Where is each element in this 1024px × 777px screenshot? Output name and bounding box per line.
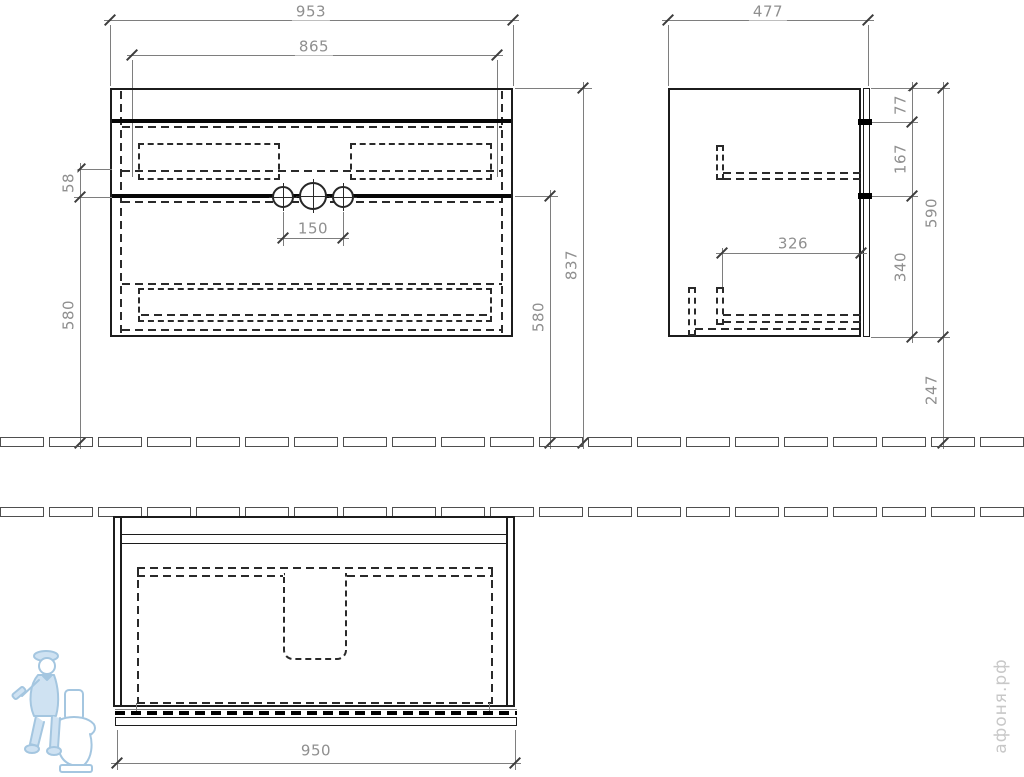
dim-front-tap-spacing: 150: [294, 221, 332, 238]
basin-hidden-outline: [347, 575, 493, 577]
hidden-line: [122, 170, 502, 172]
dim-line: [943, 82, 944, 449]
dim-side-upper-drawer-height: 167: [893, 140, 910, 178]
basin-edge-line: [112, 119, 511, 123]
plumber-watermark-icon: [8, 646, 112, 774]
hidden-line: [723, 172, 861, 174]
dim-line: [80, 163, 81, 449]
front-edge-line: [115, 709, 517, 710]
dim-line: [111, 763, 521, 764]
center-mark: [329, 197, 357, 198]
cabinet-side-outline: [668, 88, 861, 337]
dim-side-floor-clearance: 247: [924, 371, 941, 409]
technical-drawing-vanity-cabinet: 953 865: [0, 0, 1024, 777]
hidden-line: [723, 314, 861, 316]
drawer-outline: [138, 143, 280, 180]
drawer-joint-mark: [858, 193, 872, 199]
dim-front-total-height: 837: [564, 246, 581, 284]
plan-side-wall: [506, 518, 508, 705]
center-mark: [269, 197, 297, 198]
drawer-outline: [138, 288, 492, 322]
basin-hidden-outline: [137, 567, 493, 569]
basin-hidden-outline: [137, 567, 139, 704]
hidden-line: [695, 328, 861, 330]
dim-line: [550, 190, 551, 449]
plan-back-line: [122, 534, 506, 535]
drawer-profile: [716, 287, 724, 325]
basin-hidden-outline: [137, 575, 283, 577]
front-panel-outline: [863, 88, 870, 337]
dim-front-left-underside-height: 580: [61, 296, 78, 334]
dim-line: [277, 238, 349, 239]
hidden-line: [723, 178, 861, 180]
plan-side-wall: [120, 518, 122, 705]
drawer-profile: [716, 145, 724, 180]
hidden-line: [122, 283, 502, 285]
dim-front-apron-height: 58: [61, 169, 78, 197]
dim-side-top-thickness: 77: [893, 91, 910, 119]
dim-front-overall-width: 953: [292, 4, 330, 21]
dim-plan-width: 950: [297, 743, 335, 760]
drawer-outline: [350, 143, 492, 180]
dim-front-inner-width: 865: [295, 39, 333, 56]
plan-back-line: [122, 543, 506, 544]
dim-side-depth: 477: [749, 4, 787, 21]
basin-hidden-outline: [137, 702, 493, 704]
hidden-line: [122, 329, 502, 331]
hidden-line: [122, 126, 502, 128]
extension-line: [668, 25, 669, 86]
dim-line: [583, 82, 584, 449]
dim-front-right-underside-height: 580: [531, 298, 548, 336]
dim-side-drawer-depth: 326: [774, 236, 812, 253]
hidden-line: [723, 321, 861, 323]
extension-line: [110, 25, 111, 86]
watermark-site-text: афоня.рф: [991, 658, 1011, 753]
dim-side-cabinet-height: 590: [924, 194, 941, 232]
extension-line: [343, 212, 344, 246]
extension-line: [515, 196, 558, 197]
front-seal-hidden-strip: [115, 711, 517, 715]
drawer-joint-mark: [858, 119, 872, 125]
plan-front-panel: [115, 717, 517, 726]
wall-hatch-band-upper: [0, 437, 1024, 447]
dim-line: [716, 253, 867, 254]
extension-line: [868, 25, 869, 86]
dim-side-lower-drawer-height: 340: [893, 248, 910, 286]
basin-hidden-outline: [491, 567, 493, 704]
drain-recess-outline: [283, 573, 347, 660]
extension-line: [283, 212, 284, 246]
hidden-line: [141, 314, 489, 316]
center-mark: [296, 196, 330, 197]
extension-line: [513, 25, 514, 86]
